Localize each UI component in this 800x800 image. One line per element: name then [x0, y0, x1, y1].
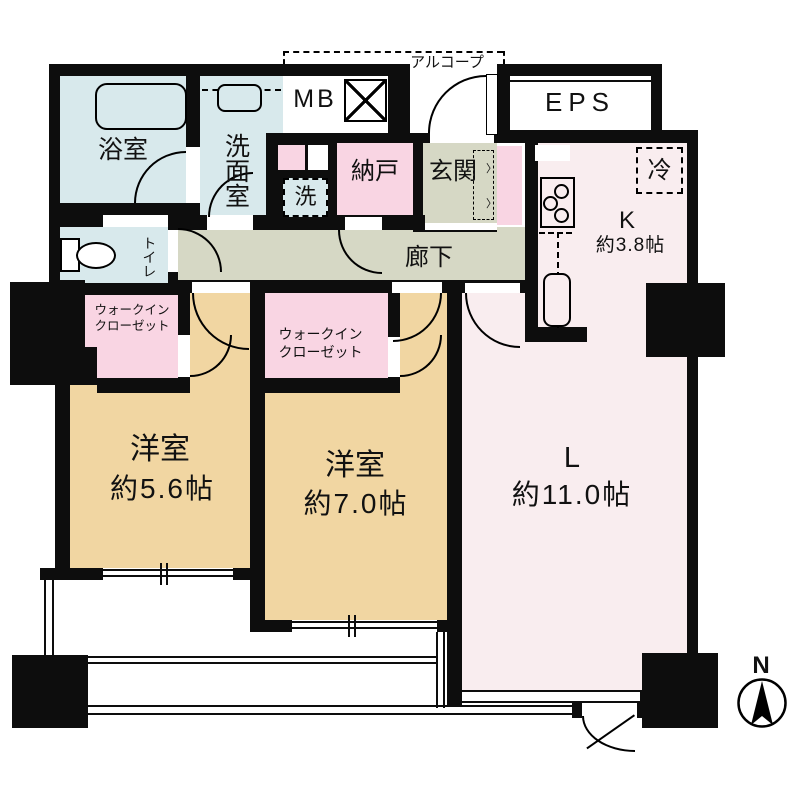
door-gap-living — [465, 283, 520, 293]
wall-top — [49, 64, 410, 76]
laundry-label: 洗 — [293, 185, 318, 209]
burner3-icon — [554, 208, 569, 223]
door-gap-bedroom1 — [192, 282, 250, 293]
bath-label: 浴室 — [75, 137, 171, 165]
wall-eps-top — [497, 64, 662, 76]
toilet-label: トイレ — [141, 229, 156, 285]
burner1-icon — [554, 184, 569, 199]
gap-toilet-top — [103, 215, 168, 227]
alcove-dash-top — [283, 51, 503, 53]
entrance-closet-chevron2: 〉 — [486, 198, 497, 210]
alcove-dash-left — [283, 51, 285, 64]
balcony-rail-mid-v2 — [443, 632, 445, 708]
wall-wic1-bottom — [97, 378, 190, 393]
balcony-rail-upper1 — [88, 656, 437, 658]
door-gap-wic2 — [388, 337, 400, 377]
door-gap-wic1 — [178, 335, 190, 377]
corridor-label: 廊下 — [400, 245, 458, 271]
window-bedroom2-tick2 — [354, 615, 356, 637]
wic1-label-line2: クローゼット — [92, 320, 172, 334]
balcony-rail-lower1 — [88, 705, 572, 707]
wall-wic1-left — [55, 280, 85, 385]
window-bedroom2-line-inner — [292, 627, 437, 629]
wall-kitchen-stub — [525, 327, 587, 342]
wall-bedroom1-left — [55, 385, 70, 578]
entrance-shoe-cabinet — [497, 146, 522, 225]
sink-icon — [543, 273, 571, 327]
counter-dash-h — [539, 232, 572, 234]
entrance-step-line — [423, 230, 497, 232]
window-living-line-outer — [462, 690, 642, 692]
door-leaf-entrance — [486, 74, 498, 135]
wall-bedrooms-divider — [250, 293, 265, 632]
window-bedroom2-tick1 — [348, 615, 350, 637]
balcony-rail-upper2 — [88, 662, 437, 664]
living-size-label: 約11.0帖 — [482, 480, 662, 511]
door-leaf-toilet — [168, 230, 178, 272]
bedroom2-label: 洋室 — [305, 449, 405, 482]
fridge-label: 冷 — [647, 158, 672, 184]
window-bedroom1-line-outer — [103, 569, 233, 571]
balcony-door-post-right — [637, 703, 650, 718]
wall-living-left — [447, 280, 462, 706]
wall-mb-right — [388, 64, 410, 143]
kitchen-counter-notch — [535, 145, 570, 161]
bedroom2-size-label: 約7.0帖 — [280, 489, 432, 520]
meter-box-label: MB — [286, 86, 344, 114]
window-bedroom1-tick2 — [166, 563, 168, 585]
eps-label: EPS — [530, 88, 630, 117]
wall-bedroom1-bottom-left — [40, 568, 103, 580]
floor-plan: 〉 〉 浴室 洗面室 トイレ MB アルコープ EPS 納戸 玄関 洗 冷 K … — [0, 0, 800, 800]
bedroom1-label: 洋室 — [110, 433, 210, 466]
eps-inner-line — [510, 80, 651, 82]
wall-bath-bottom — [49, 203, 200, 215]
window-bedroom1-tick1 — [160, 563, 162, 585]
wall-storage-right — [413, 143, 423, 232]
window-living-cap — [640, 690, 643, 704]
window-bedroom2-line-outer — [292, 621, 437, 623]
wall-kitchen-left — [525, 132, 538, 342]
door-gap-entrance — [430, 133, 494, 143]
living-label: L — [547, 443, 597, 475]
balcony-rail-left-v1 — [44, 580, 46, 655]
kitchen-label: K — [602, 208, 652, 234]
wic2-label-line1: ウォークイン — [272, 327, 369, 342]
window-living-line-inner — [462, 701, 642, 703]
balcony-rail-lower2 — [88, 713, 572, 715]
wall-bedroom2-bottom-left — [250, 620, 292, 632]
wall-wic1-notch — [85, 347, 97, 385]
pillar-left-mid — [10, 282, 55, 385]
washbasin-icon — [217, 84, 262, 112]
pillar-right-mid — [646, 283, 725, 357]
wall-left — [49, 64, 60, 295]
pillar-bottom-right — [642, 653, 718, 728]
window-bedroom1-line-inner — [103, 575, 233, 577]
balcony-door-post-left — [572, 703, 582, 718]
door-leaf-bath — [186, 147, 200, 203]
balcony-rail-left-v2 — [52, 580, 54, 655]
entrance-closet-chevron1: 〉 — [486, 163, 497, 175]
entrance-label: 玄関 — [425, 159, 481, 185]
bedroom1-size-label: 約5.6帖 — [85, 474, 240, 505]
wall-toilet-top — [49, 215, 103, 227]
balcony-rail-mid-v1 — [436, 632, 438, 708]
compass-icon — [735, 676, 789, 730]
kitchen-size-label: 約3.8帖 — [578, 236, 683, 257]
door-gap-storage — [345, 217, 382, 230]
hatch-box-small — [308, 145, 328, 170]
wic2-label-line2: クローゼット — [272, 345, 369, 360]
door-gap-bedroom2 — [392, 282, 442, 293]
storage-label: 納戸 — [346, 159, 404, 185]
bathtub-icon — [95, 83, 187, 130]
wic1-label-line1: ウォークイン — [92, 304, 172, 318]
wall-eps-right — [651, 64, 662, 133]
pillar-bottom-left — [12, 655, 88, 728]
closet-box-small — [278, 145, 305, 170]
washroom-label: 洗面室 — [221, 120, 249, 220]
toilet-bowl-icon — [76, 242, 116, 269]
alcove-dash-right — [503, 51, 505, 64]
wall-right — [687, 132, 698, 728]
alcove-label: アルコープ — [398, 55, 496, 72]
meter-box-icon — [344, 79, 387, 122]
wall-wic2-bottom — [265, 378, 400, 393]
